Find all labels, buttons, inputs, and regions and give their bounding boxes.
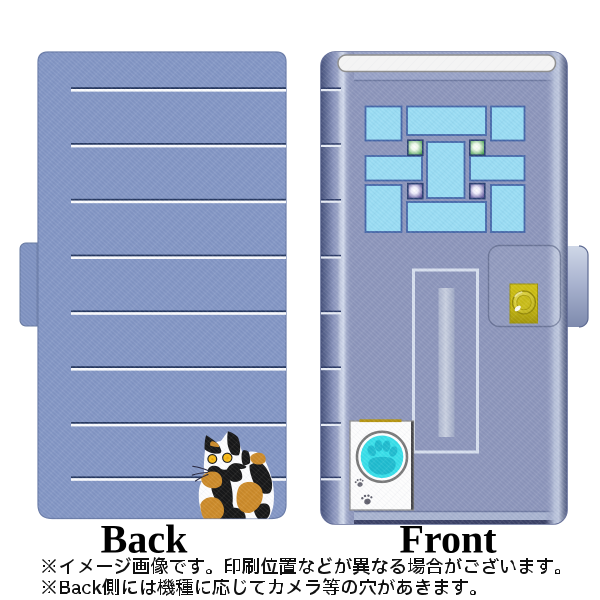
svg-text:Front: Front [399, 517, 497, 562]
svg-text:Back: Back [101, 517, 188, 562]
